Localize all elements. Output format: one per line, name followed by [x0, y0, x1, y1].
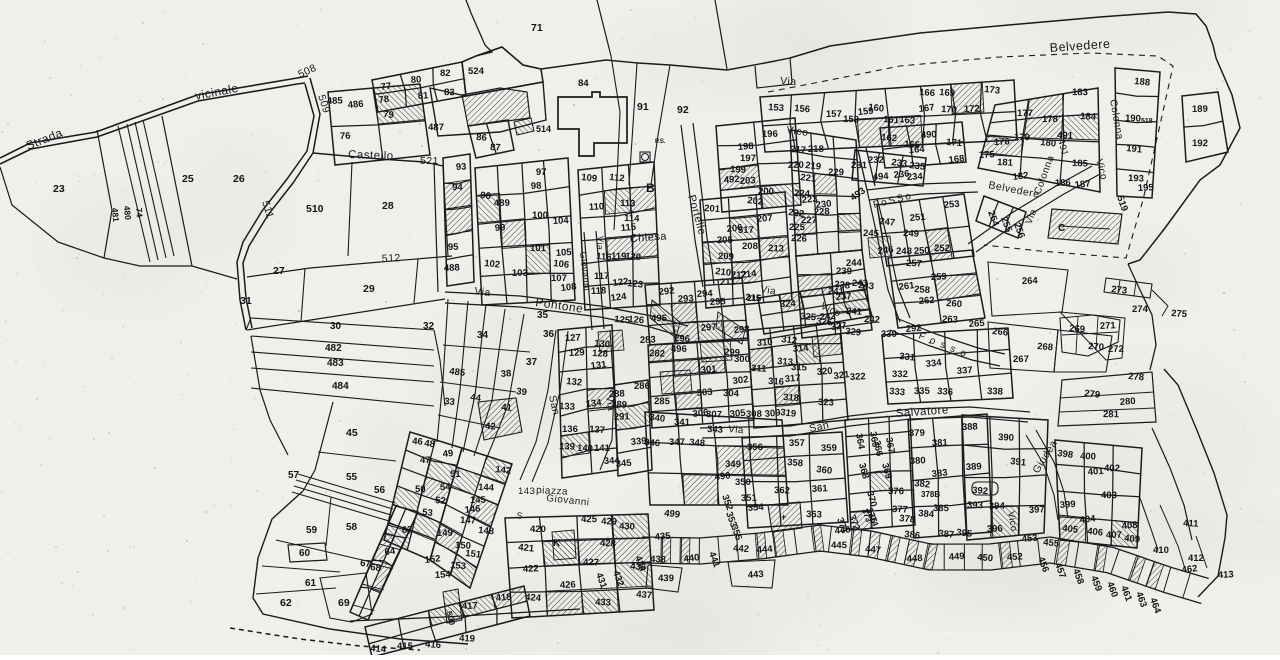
svg-text:347: 347 — [669, 437, 685, 448]
svg-text:408: 408 — [1121, 520, 1138, 532]
svg-text:226: 226 — [791, 233, 807, 245]
svg-text:341: 341 — [674, 417, 691, 428]
svg-text:271: 271 — [1100, 320, 1117, 332]
svg-text:116: 116 — [596, 251, 612, 263]
svg-text:234: 234 — [907, 171, 924, 183]
svg-text:253: 253 — [943, 199, 960, 211]
svg-text:362: 362 — [774, 485, 790, 497]
svg-text:96: 96 — [480, 190, 492, 202]
svg-text:411: 411 — [1183, 518, 1200, 530]
svg-text:335: 335 — [914, 386, 931, 397]
svg-text:260: 260 — [946, 298, 963, 310]
svg-text:267: 267 — [1013, 354, 1029, 365]
svg-text:141: 141 — [594, 443, 611, 454]
svg-text:442: 442 — [733, 543, 750, 555]
svg-text:Castello: Castello — [348, 149, 394, 163]
svg-text:401: 401 — [1087, 466, 1104, 478]
svg-text:183: 183 — [1072, 87, 1088, 98]
svg-text:258: 258 — [914, 284, 931, 296]
svg-text:134: 134 — [585, 397, 603, 410]
svg-text:389: 389 — [966, 461, 982, 473]
svg-text:446: 446 — [834, 524, 851, 537]
svg-text:392: 392 — [972, 485, 989, 497]
svg-text:30: 30 — [330, 321, 342, 332]
svg-text:282: 282 — [649, 348, 665, 360]
svg-text:490: 490 — [714, 470, 731, 483]
svg-text:484: 484 — [332, 381, 349, 392]
svg-text:86: 86 — [476, 132, 487, 144]
svg-text:184: 184 — [1080, 111, 1097, 123]
svg-text:249: 249 — [903, 228, 919, 240]
svg-text:P.S.: P.S. — [655, 139, 666, 145]
svg-text:239: 239 — [836, 266, 852, 277]
svg-text:281: 281 — [1103, 409, 1120, 420]
svg-text:435: 435 — [654, 531, 671, 543]
svg-text:118: 118 — [591, 285, 607, 297]
svg-text:278: 278 — [1128, 371, 1145, 383]
svg-text:31: 31 — [240, 295, 252, 307]
svg-text:189: 189 — [1192, 104, 1208, 115]
svg-text:167: 167 — [918, 102, 935, 115]
svg-text:76: 76 — [340, 131, 351, 142]
svg-text:47: 47 — [420, 455, 431, 466]
svg-text:322: 322 — [850, 371, 866, 383]
svg-text:243: 243 — [858, 280, 875, 292]
svg-text:26: 26 — [233, 173, 245, 185]
svg-text:383: 383 — [931, 467, 948, 480]
svg-text:195: 195 — [1138, 182, 1155, 194]
svg-text:462: 462 — [1181, 563, 1198, 576]
svg-text:332: 332 — [892, 369, 908, 380]
svg-text:Via: Via — [474, 285, 492, 299]
svg-text:177: 177 — [1017, 108, 1033, 119]
svg-text:126: 126 — [628, 314, 645, 326]
svg-text:485: 485 — [449, 366, 467, 379]
svg-text:280: 280 — [1119, 396, 1136, 408]
svg-text:60: 60 — [299, 548, 311, 559]
svg-text:98: 98 — [531, 180, 542, 192]
svg-text:269: 269 — [1069, 323, 1086, 335]
svg-text:428: 428 — [600, 538, 616, 550]
svg-text:23: 23 — [53, 183, 65, 195]
svg-text:394: 394 — [989, 501, 1006, 512]
svg-text:419: 419 — [459, 633, 475, 645]
svg-text:521: 521 — [420, 155, 439, 167]
svg-text:340: 340 — [649, 412, 666, 425]
svg-text:349: 349 — [725, 459, 741, 470]
svg-text:422: 422 — [523, 563, 539, 575]
svg-text:160: 160 — [868, 102, 885, 115]
svg-text:45: 45 — [346, 427, 358, 439]
svg-text:356: 356 — [747, 442, 763, 453]
svg-text:38: 38 — [500, 368, 511, 380]
svg-text:448: 448 — [906, 553, 923, 565]
svg-text:176: 176 — [994, 136, 1010, 148]
svg-text:105: 105 — [555, 247, 572, 259]
svg-text:395: 395 — [956, 527, 974, 540]
svg-text:59: 59 — [306, 525, 318, 536]
svg-text:403: 403 — [1101, 490, 1117, 501]
svg-text:129: 129 — [569, 347, 585, 359]
svg-text:71: 71 — [531, 22, 543, 34]
svg-text:200: 200 — [758, 186, 774, 198]
svg-text:455: 455 — [1043, 537, 1061, 550]
svg-text:173: 173 — [984, 84, 1001, 97]
svg-text:41: 41 — [501, 402, 513, 414]
svg-text:417: 417 — [462, 600, 478, 612]
svg-text:190: 190 — [1125, 113, 1141, 125]
svg-text:483: 483 — [327, 358, 344, 369]
svg-text:117: 117 — [594, 271, 609, 282]
svg-text:156: 156 — [794, 103, 811, 115]
svg-text:488: 488 — [444, 262, 460, 274]
svg-text:307: 307 — [706, 409, 722, 421]
svg-text:358: 358 — [787, 457, 804, 469]
svg-text:181: 181 — [997, 157, 1014, 169]
svg-text:123: 123 — [627, 278, 644, 291]
svg-text:91: 91 — [637, 101, 649, 113]
svg-text:220: 220 — [788, 160, 804, 171]
svg-text:402: 402 — [1104, 463, 1120, 474]
svg-text:354: 354 — [747, 502, 764, 514]
svg-text:380: 380 — [910, 455, 926, 467]
svg-text:321: 321 — [833, 369, 851, 382]
svg-text:345: 345 — [615, 458, 632, 470]
svg-text:496: 496 — [671, 344, 687, 355]
svg-text:449: 449 — [948, 551, 965, 563]
svg-text:46: 46 — [412, 436, 423, 448]
svg-text:274: 274 — [1132, 304, 1149, 315]
svg-text:94: 94 — [452, 182, 464, 193]
svg-text:137: 137 — [589, 424, 606, 436]
svg-text:205: 205 — [717, 235, 734, 246]
svg-text:489: 489 — [494, 198, 510, 209]
svg-text:213: 213 — [768, 243, 784, 255]
svg-text:188: 188 — [1134, 76, 1151, 89]
svg-text:179: 179 — [1014, 132, 1030, 143]
svg-text:84: 84 — [578, 78, 589, 89]
svg-text:27: 27 — [273, 265, 285, 277]
svg-text:452: 452 — [1007, 551, 1023, 563]
svg-text:426: 426 — [560, 579, 576, 591]
svg-text:208: 208 — [742, 241, 758, 252]
svg-text:35: 35 — [537, 310, 549, 321]
svg-text:376: 376 — [888, 486, 904, 497]
svg-text:25: 25 — [182, 173, 194, 185]
svg-text:143: 143 — [518, 486, 535, 497]
svg-text:Via: Via — [780, 75, 797, 88]
svg-text:393: 393 — [967, 500, 983, 511]
svg-text:99: 99 — [494, 222, 505, 234]
svg-text:58: 58 — [346, 522, 358, 533]
svg-text:311: 311 — [751, 363, 768, 375]
svg-text:390: 390 — [998, 432, 1014, 444]
svg-text:427: 427 — [583, 557, 599, 569]
svg-text:414: 414 — [370, 643, 387, 655]
svg-text:300: 300 — [734, 354, 750, 365]
svg-text:494: 494 — [872, 171, 889, 183]
svg-text:62: 62 — [280, 597, 292, 609]
svg-text:330: 330 — [881, 329, 897, 340]
svg-text:292: 292 — [658, 285, 675, 298]
svg-text:329: 329 — [845, 326, 862, 339]
svg-text:324: 324 — [780, 298, 797, 310]
svg-text:261: 261 — [898, 280, 916, 293]
svg-text:363: 363 — [806, 509, 822, 521]
svg-text:110: 110 — [589, 201, 605, 213]
svg-text:242: 242 — [864, 314, 880, 326]
svg-text:39: 39 — [516, 386, 528, 398]
svg-text:319: 319 — [780, 407, 797, 420]
svg-text:106: 106 — [553, 258, 570, 271]
svg-text:398: 398 — [1057, 448, 1074, 461]
svg-text:323: 323 — [818, 397, 834, 409]
svg-text:436: 436 — [630, 561, 647, 573]
svg-text:32: 32 — [423, 321, 435, 332]
svg-text:443: 443 — [747, 569, 764, 581]
svg-text:104: 104 — [553, 215, 570, 227]
svg-text:433: 433 — [595, 597, 611, 609]
svg-text:360: 360 — [816, 464, 833, 477]
svg-text:430: 430 — [619, 521, 635, 533]
svg-text:481: 481 — [110, 207, 121, 222]
svg-text:379: 379 — [909, 428, 925, 439]
svg-text:29: 29 — [363, 283, 375, 295]
svg-text:265: 265 — [968, 318, 985, 330]
svg-text:336: 336 — [937, 386, 954, 398]
svg-text:153: 153 — [450, 560, 467, 572]
svg-text:357: 357 — [789, 438, 805, 449]
svg-text:399: 399 — [1059, 499, 1076, 511]
svg-text:333: 333 — [889, 386, 906, 398]
svg-text:221: 221 — [800, 172, 818, 185]
svg-text:142: 142 — [495, 464, 512, 477]
svg-text:219: 219 — [805, 160, 822, 173]
svg-text:108: 108 — [560, 281, 577, 294]
svg-text:382: 382 — [914, 478, 931, 491]
svg-text:425: 425 — [581, 514, 598, 525]
svg-text:416: 416 — [425, 639, 442, 651]
svg-text:197: 197 — [740, 153, 756, 164]
svg-text:317: 317 — [784, 373, 801, 385]
svg-text:56: 56 — [374, 485, 386, 496]
svg-text:381: 381 — [932, 437, 949, 449]
svg-text:175: 175 — [979, 149, 996, 161]
svg-text:440: 440 — [683, 552, 700, 565]
svg-text:158: 158 — [843, 114, 859, 126]
svg-text:172: 172 — [964, 103, 980, 115]
svg-text:57: 57 — [288, 470, 300, 481]
svg-text:28: 28 — [382, 200, 394, 212]
svg-text:191: 191 — [1126, 143, 1144, 156]
svg-text:263: 263 — [942, 314, 958, 326]
svg-text:407: 407 — [1106, 530, 1122, 541]
svg-text:53: 53 — [422, 507, 433, 519]
svg-text:36: 36 — [543, 329, 555, 340]
svg-text:49: 49 — [442, 448, 454, 460]
svg-text:241: 241 — [828, 286, 845, 298]
svg-text:510: 510 — [306, 203, 324, 215]
svg-text:192: 192 — [1192, 138, 1208, 149]
svg-text:157: 157 — [826, 109, 842, 120]
svg-text:185: 185 — [1072, 158, 1089, 170]
svg-text:112: 112 — [609, 172, 625, 184]
svg-text:518: 518 — [1141, 118, 1153, 125]
svg-text:79: 79 — [383, 109, 395, 121]
svg-text:405: 405 — [1062, 523, 1080, 536]
svg-text:482: 482 — [325, 343, 342, 354]
svg-text:146: 146 — [464, 503, 481, 516]
svg-text:164: 164 — [908, 144, 925, 156]
svg-text:338: 338 — [987, 386, 1003, 398]
svg-text:293: 293 — [678, 293, 694, 305]
svg-text:225: 225 — [789, 222, 806, 233]
svg-text:490: 490 — [921, 129, 937, 141]
svg-text:302: 302 — [732, 374, 749, 387]
svg-text:331: 331 — [899, 351, 917, 364]
svg-text:439: 439 — [658, 573, 674, 584]
svg-text:148: 148 — [478, 525, 495, 537]
svg-text:93: 93 — [456, 161, 467, 173]
svg-text:301: 301 — [700, 364, 717, 376]
svg-text:304: 304 — [723, 388, 740, 400]
svg-text:257: 257 — [906, 258, 922, 270]
svg-text:101: 101 — [530, 243, 547, 254]
svg-text:55: 55 — [346, 472, 358, 483]
svg-text:Via: Via — [595, 236, 605, 250]
svg-text:151: 151 — [465, 548, 483, 561]
svg-text:82: 82 — [440, 68, 451, 79]
svg-text:198: 198 — [737, 141, 754, 153]
svg-text:266: 266 — [992, 326, 1009, 339]
svg-text:514: 514 — [536, 124, 551, 134]
svg-text:61: 61 — [305, 578, 317, 589]
svg-text:438: 438 — [650, 554, 666, 566]
svg-text:149: 149 — [437, 528, 453, 539]
svg-text:404: 404 — [1079, 513, 1097, 526]
svg-text:295: 295 — [710, 296, 727, 308]
svg-text:42: 42 — [485, 421, 496, 433]
svg-text:453: 453 — [1021, 533, 1038, 545]
svg-text:268: 268 — [1037, 341, 1054, 353]
svg-text:397: 397 — [1029, 504, 1045, 516]
svg-text:251: 251 — [909, 212, 926, 224]
svg-text:279: 279 — [1084, 388, 1101, 401]
svg-text:139: 139 — [559, 441, 575, 453]
svg-text:33: 33 — [444, 396, 456, 408]
svg-text:102: 102 — [484, 258, 501, 271]
svg-text:264: 264 — [1022, 275, 1039, 287]
svg-text:275: 275 — [1171, 308, 1188, 320]
svg-text:259: 259 — [931, 271, 947, 283]
svg-text:400: 400 — [1080, 451, 1096, 463]
svg-text:69: 69 — [338, 597, 350, 609]
svg-text:492: 492 — [723, 174, 740, 186]
svg-text:209: 209 — [718, 251, 734, 263]
svg-text:97: 97 — [536, 167, 547, 178]
svg-text:499: 499 — [664, 508, 681, 521]
svg-text:178: 178 — [1042, 114, 1058, 125]
svg-text:421: 421 — [518, 542, 536, 555]
svg-text:74: 74 — [134, 207, 145, 218]
svg-text:48: 48 — [424, 438, 436, 450]
svg-text:201: 201 — [704, 203, 721, 215]
svg-text:95: 95 — [448, 242, 460, 253]
svg-text:124: 124 — [610, 291, 628, 304]
svg-text:325: 325 — [800, 311, 817, 323]
svg-text:270: 270 — [1088, 341, 1105, 353]
svg-text:388: 388 — [962, 421, 978, 433]
svg-text:413: 413 — [1218, 569, 1234, 581]
svg-text:132: 132 — [566, 376, 583, 389]
svg-text:247: 247 — [879, 216, 896, 229]
svg-text:169: 169 — [939, 87, 956, 99]
svg-text:136: 136 — [562, 424, 578, 435]
svg-text:B: B — [646, 181, 655, 195]
svg-text:391: 391 — [1010, 456, 1028, 469]
svg-text:283: 283 — [640, 334, 656, 346]
svg-text:232: 232 — [868, 155, 884, 166]
svg-text:359: 359 — [821, 443, 837, 454]
svg-text:147: 147 — [460, 515, 476, 527]
svg-text:378B: 378B — [921, 490, 940, 499]
svg-text:361: 361 — [812, 483, 829, 495]
svg-text:450: 450 — [977, 552, 994, 564]
svg-text:409: 409 — [1124, 533, 1141, 545]
svg-text:154: 154 — [435, 569, 452, 581]
svg-text:C: C — [1058, 223, 1065, 234]
svg-text:486: 486 — [347, 99, 364, 111]
svg-text:140: 140 — [577, 443, 593, 455]
svg-text:144: 144 — [478, 482, 495, 494]
svg-text:487: 487 — [428, 122, 444, 133]
svg-text:131: 131 — [590, 359, 608, 372]
svg-text:316: 316 — [768, 376, 784, 388]
svg-text:34: 34 — [477, 330, 489, 341]
svg-text:166: 166 — [919, 87, 936, 99]
svg-text:273: 273 — [1111, 284, 1128, 297]
svg-text:120: 120 — [625, 251, 642, 263]
svg-text:350: 350 — [735, 477, 751, 488]
svg-text:230: 230 — [815, 198, 832, 211]
svg-text:161: 161 — [883, 114, 900, 126]
svg-text:215: 215 — [747, 293, 761, 303]
svg-text:109: 109 — [581, 172, 598, 185]
svg-text:480: 480 — [122, 205, 133, 220]
svg-text:385: 385 — [933, 503, 950, 514]
svg-text:318: 318 — [783, 392, 800, 404]
svg-text:153: 153 — [768, 102, 785, 114]
svg-text:524: 524 — [468, 66, 485, 77]
svg-text:44: 44 — [470, 392, 483, 404]
svg-text:285: 285 — [654, 396, 671, 407]
svg-text:187: 187 — [1074, 178, 1091, 191]
svg-text:396: 396 — [987, 523, 1003, 535]
svg-text:52: 52 — [435, 495, 446, 507]
svg-text:170: 170 — [941, 104, 957, 116]
svg-text:103: 103 — [512, 268, 528, 279]
svg-text:406: 406 — [1087, 526, 1104, 539]
svg-text:444: 444 — [756, 544, 773, 556]
svg-text:309: 309 — [764, 407, 781, 420]
svg-text:68: 68 — [370, 562, 382, 574]
svg-text:Via: Via — [603, 395, 616, 412]
svg-text:168: 168 — [948, 153, 965, 166]
svg-text:262: 262 — [918, 295, 935, 307]
svg-text:113: 113 — [620, 198, 636, 210]
svg-text:64: 64 — [384, 546, 397, 558]
svg-text:346: 346 — [644, 437, 661, 449]
